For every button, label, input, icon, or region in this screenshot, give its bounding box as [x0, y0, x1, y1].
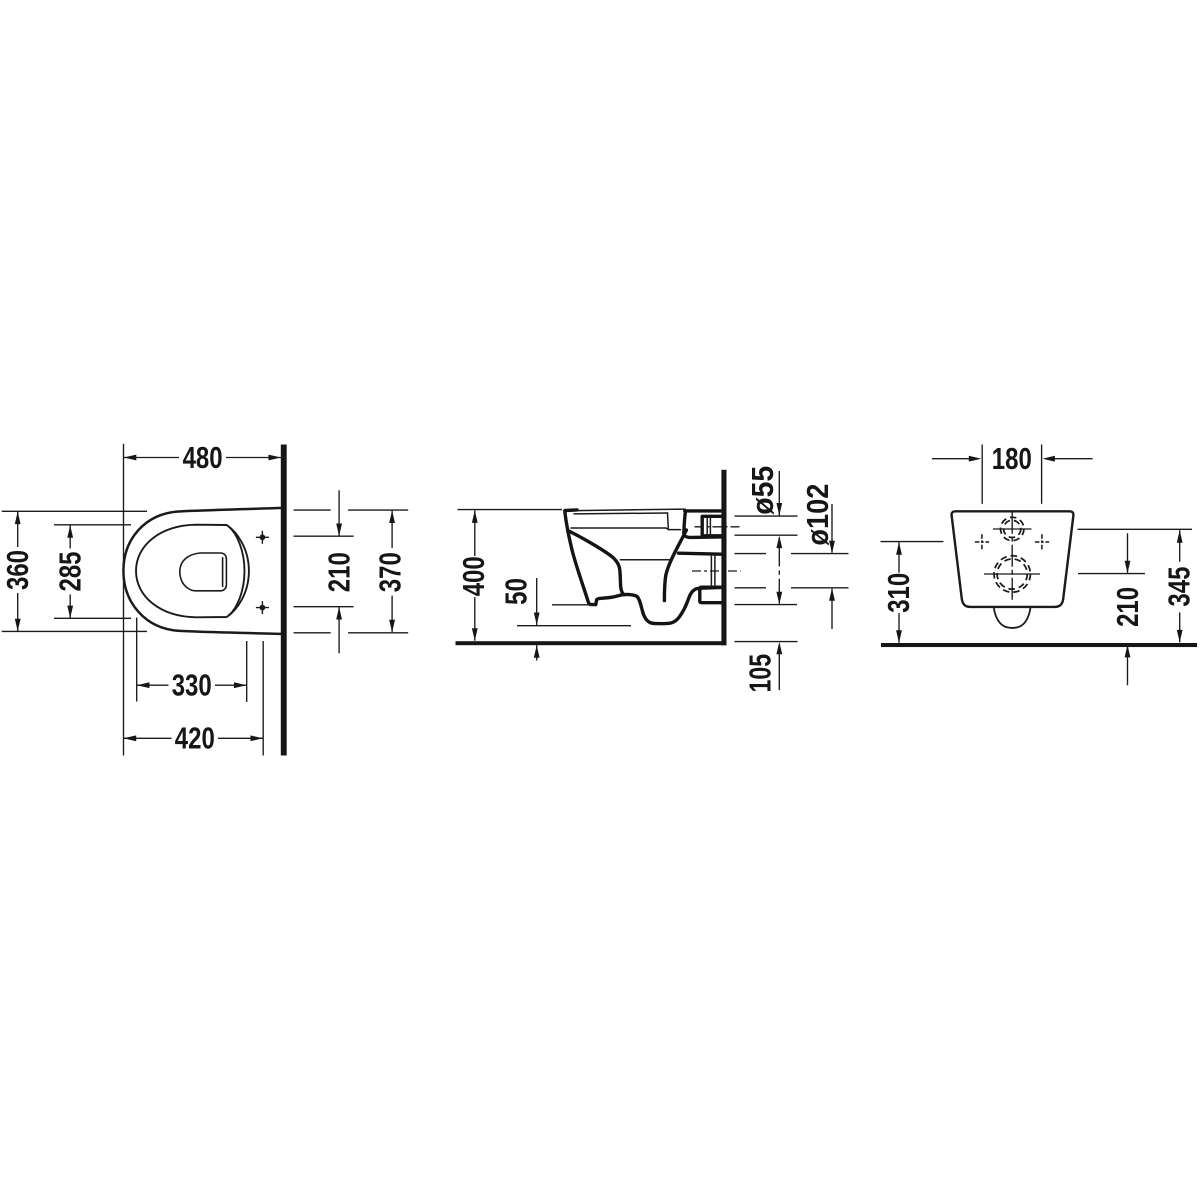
svg-text:ø55: ø55: [746, 466, 780, 515]
svg-text:310: 310: [882, 573, 916, 613]
svg-text:50: 50: [500, 578, 534, 605]
svg-text:370: 370: [373, 552, 407, 592]
svg-text:210: 210: [1111, 587, 1145, 627]
svg-text:400: 400: [457, 556, 491, 596]
svg-text:285: 285: [54, 551, 88, 591]
svg-text:420: 420: [175, 722, 215, 756]
svg-text:330: 330: [172, 669, 212, 703]
svg-text:105: 105: [744, 654, 778, 693]
svg-text:ø102: ø102: [801, 484, 835, 546]
svg-text:210: 210: [323, 552, 357, 592]
svg-text:345: 345: [1163, 567, 1197, 607]
svg-text:480: 480: [183, 441, 223, 475]
svg-text:360: 360: [1, 550, 35, 590]
svg-text:180: 180: [992, 442, 1032, 476]
